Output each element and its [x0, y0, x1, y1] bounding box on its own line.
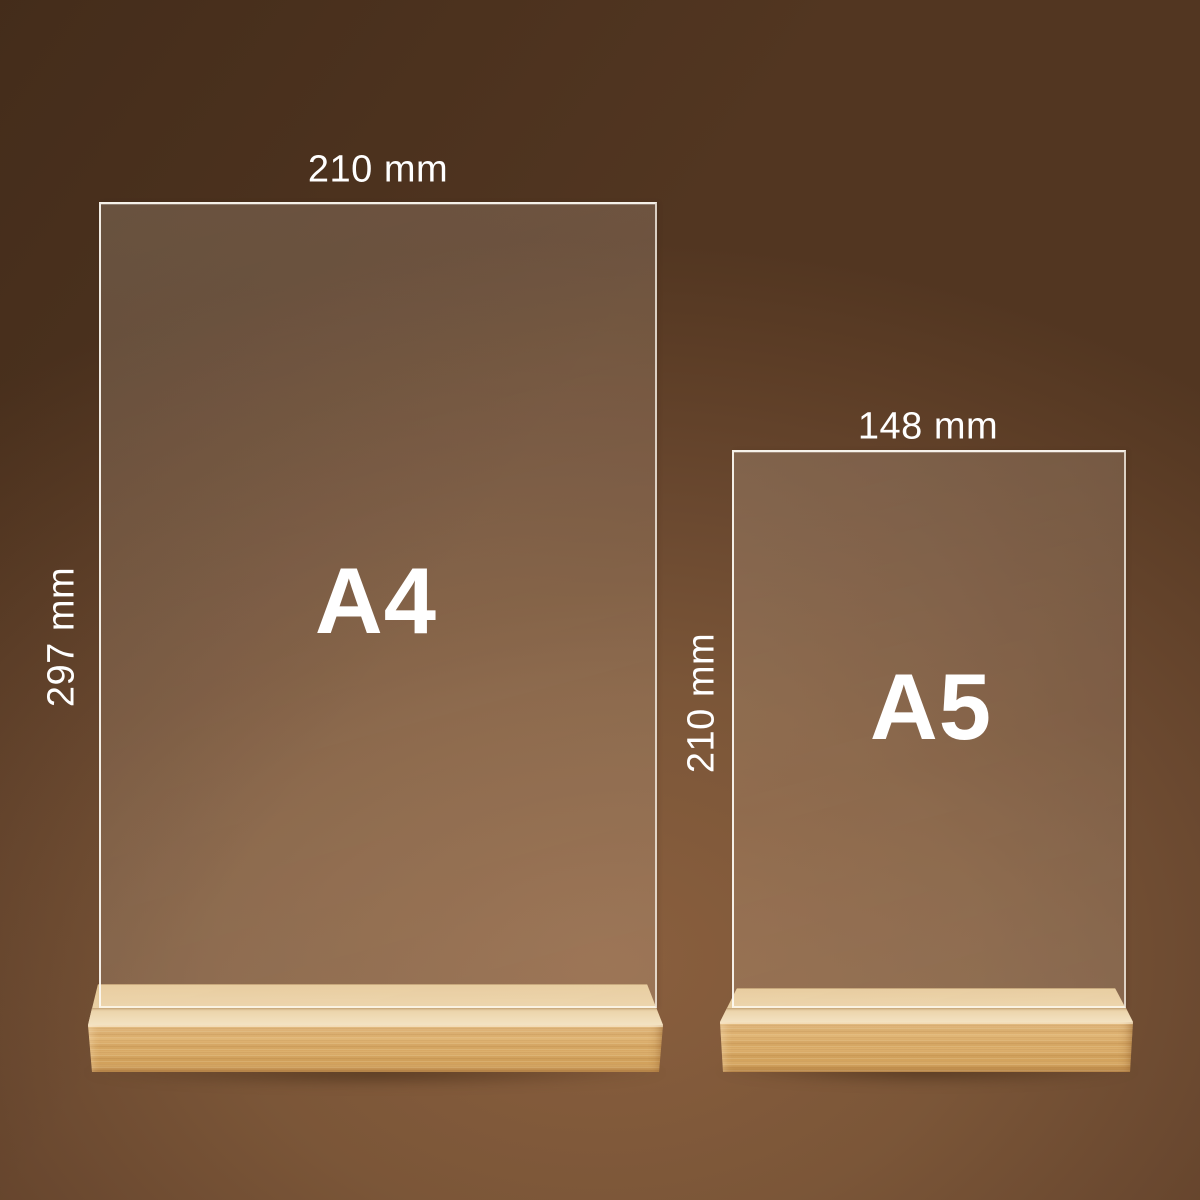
a4-wood-base-front [88, 1025, 663, 1072]
a5-acrylic-panel: A5 [732, 450, 1126, 1008]
a4-width-dimension-label: 210 mm [308, 149, 448, 192]
a5-format-label: A5 [870, 653, 992, 761]
a5-wood-base-front [720, 1022, 1133, 1072]
a5-height-dimension-label: 210 mm [681, 633, 724, 773]
a4-wood-base-slot [88, 1008, 663, 1025]
a5-width-dimension-label: 148 mm [858, 406, 998, 449]
scene-background: 210 mm 297 mm A4 148 mm 210 mm A5 [0, 0, 1200, 1200]
a4-height-dimension-label: 297 mm [41, 567, 84, 707]
a4-acrylic-panel: A4 [99, 202, 657, 1008]
a5-wood-base-slot [720, 1008, 1133, 1022]
a4-format-label: A4 [315, 547, 437, 655]
